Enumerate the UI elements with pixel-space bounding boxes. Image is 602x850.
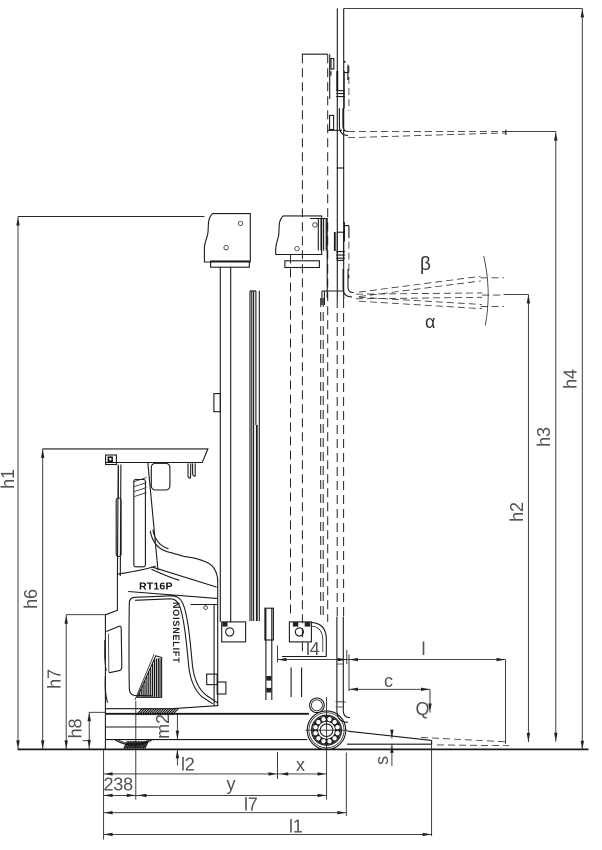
svg-text:l4: l4 xyxy=(306,639,320,659)
svg-text:RT16P: RT16P xyxy=(139,581,173,593)
svg-text:α: α xyxy=(425,312,435,332)
svg-text:y: y xyxy=(227,774,236,794)
svg-text:l1: l1 xyxy=(289,817,303,837)
svg-text:l7: l7 xyxy=(244,795,258,815)
svg-text:x: x xyxy=(296,755,305,775)
svg-text:Q: Q xyxy=(416,699,430,719)
svg-text:h4: h4 xyxy=(560,369,580,389)
svg-text:c: c xyxy=(384,671,393,691)
svg-text:h8: h8 xyxy=(65,719,85,739)
svg-text:238: 238 xyxy=(104,775,134,795)
svg-text:β: β xyxy=(420,254,431,275)
svg-text:h7: h7 xyxy=(44,669,64,689)
svg-text:m2: m2 xyxy=(153,714,173,739)
svg-text:h1: h1 xyxy=(0,469,18,489)
svg-text:h2: h2 xyxy=(507,502,527,522)
svg-text:h3: h3 xyxy=(534,427,554,447)
svg-text:l2: l2 xyxy=(181,755,195,775)
svg-text:s: s xyxy=(372,756,392,765)
svg-text:l: l xyxy=(422,639,426,659)
svg-text:h6: h6 xyxy=(21,589,41,609)
svg-text:NOISNELIFT: NOISNELIFT xyxy=(171,602,181,664)
